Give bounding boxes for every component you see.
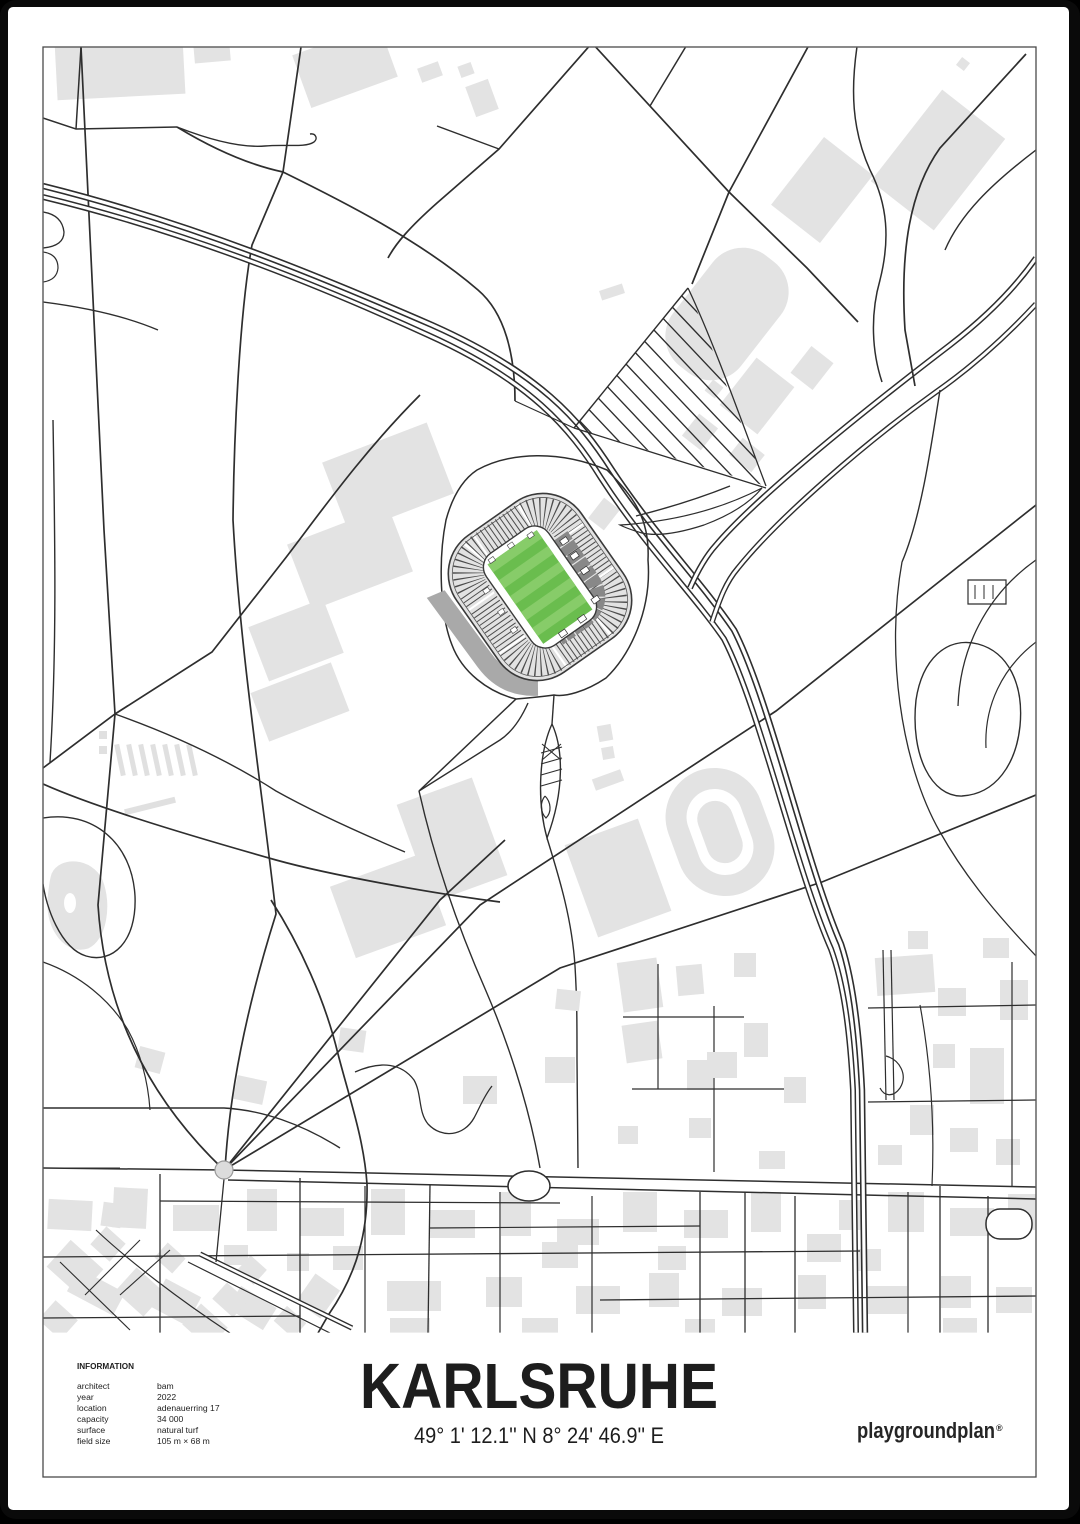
svg-text:bam: bam <box>157 1381 174 1391</box>
svg-text:year: year <box>77 1392 94 1402</box>
svg-text:location: location <box>77 1403 107 1413</box>
svg-text:49° 1' 12.1'' N 8° 24' 46.9'': 49° 1' 12.1'' N 8° 24' 46.9'' E <box>414 1423 664 1448</box>
svg-text:2022: 2022 <box>157 1392 176 1402</box>
svg-text:adenauerring 17: adenauerring 17 <box>157 1403 220 1413</box>
svg-text:architect: architect <box>77 1381 110 1391</box>
svg-text:34 000: 34 000 <box>157 1414 184 1424</box>
svg-text:105 m × 68 m: 105 m × 68 m <box>157 1436 210 1446</box>
svg-text:natural turf: natural turf <box>157 1425 199 1435</box>
svg-text:field size: field size <box>77 1436 111 1446</box>
svg-text:KARLSRUHE: KARLSRUHE <box>360 1350 718 1422</box>
svg-text:®: ® <box>996 1423 1003 1433</box>
svg-text:surface: surface <box>77 1425 105 1435</box>
svg-text:capacity: capacity <box>77 1414 109 1424</box>
svg-text:playgroundplan: playgroundplan <box>857 1418 995 1443</box>
svg-text:INFORMATION: INFORMATION <box>77 1362 134 1371</box>
